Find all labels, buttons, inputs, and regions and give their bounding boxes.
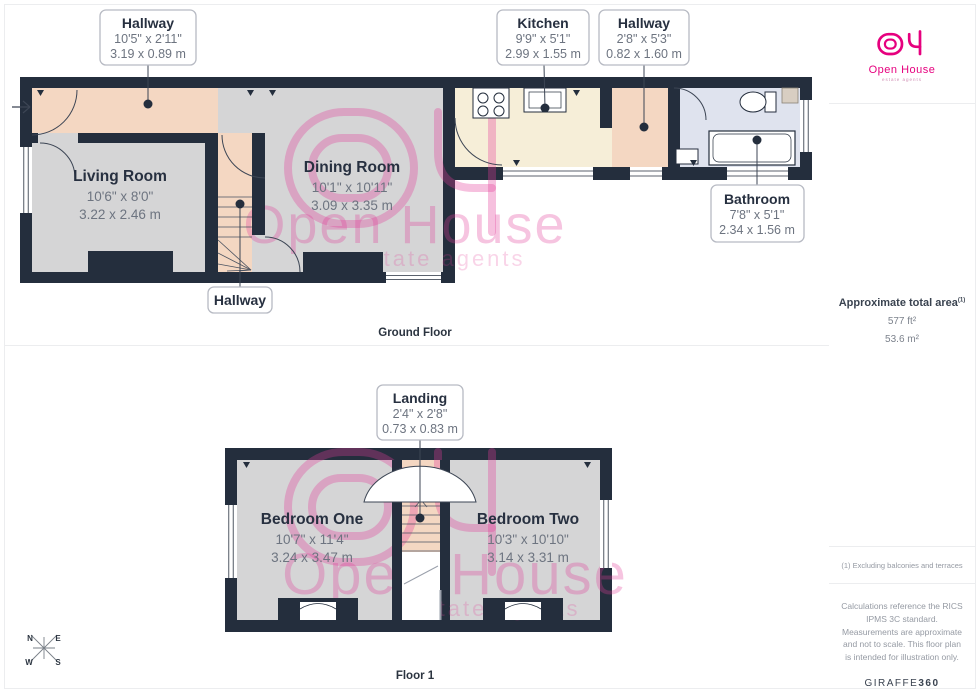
- bathtub-icon: [709, 131, 795, 165]
- hallway-top-title: Hallway: [122, 15, 174, 31]
- hallway-top-metric: 3.19 x 0.89 m: [110, 47, 186, 61]
- total-area-title-text: Approximate total area: [839, 297, 958, 309]
- gf-dining-chimney: [303, 252, 383, 272]
- landing-title: Landing: [393, 390, 447, 406]
- agency-logo: Open House estate agents: [829, 5, 975, 104]
- giraffe360-brand: GIRAFFE360: [841, 678, 963, 689]
- dining-room-metric: 3.09 x 3.35 m: [311, 198, 393, 213]
- landing-imperial: 2'4" x 2'8": [393, 407, 448, 421]
- disclaimer-text: Calculations reference the RICS IPMS 3C …: [841, 600, 963, 664]
- bedroom-two-metric: 3.14 x 3.31 m: [487, 550, 569, 565]
- agency-name: Open House: [869, 64, 936, 76]
- hallway-right-title: Hallway: [618, 15, 670, 31]
- bathroom-metric: 2.34 x 1.56 m: [719, 223, 795, 237]
- landing-metric: 0.73 x 0.83 m: [382, 422, 458, 436]
- agency-tagline: estate agents: [882, 77, 922, 82]
- hallway-stairs-title: Hallway: [214, 292, 266, 308]
- kitchen-imperial: 9'9" x 5'1": [516, 32, 571, 46]
- ground-floor-plan: Open House estate agents: [12, 10, 812, 339]
- living-room-imperial: 10'6" x 8'0": [87, 189, 154, 204]
- floor-1-plan: Open House estate agents: [225, 385, 628, 682]
- living-room-metric: 3.22 x 2.46 m: [79, 207, 161, 222]
- bedroom-two-imperial: 10'3" x 10'10": [487, 532, 569, 547]
- gf-hallway-floor: [32, 88, 218, 133]
- f1-stairwell-void: [402, 552, 440, 620]
- agency-logo-icon: [874, 27, 930, 63]
- bedroom-one-title: Bedroom One: [261, 511, 364, 528]
- bedroom-two-label: Bedroom Two 10'3" x 10'10" 3.14 x 3.31 m: [477, 511, 579, 565]
- bedroom-one-metric: 3.24 x 3.47 m: [271, 550, 353, 565]
- hallway-right-imperial: 2'8" x 5'3": [617, 32, 672, 46]
- floorplan-page: Open House estate agents: [0, 0, 980, 693]
- giraffe-360-text: 360: [918, 678, 939, 689]
- total-area-superscript: (1): [958, 297, 965, 303]
- total-area-title: Approximate total area(1): [829, 297, 975, 309]
- hallway-right-metric: 0.82 x 1.60 m: [606, 47, 682, 61]
- ground-floor-caption: Ground Floor: [378, 327, 452, 339]
- gf-vestibule-floor: [218, 88, 265, 133]
- dining-room-label: Dining Room 10'1" x 10'11" 3.09 x 3.35 m: [304, 159, 400, 213]
- living-room-title: Living Room: [73, 168, 167, 185]
- floor-1-caption: Floor 1: [396, 670, 435, 682]
- floor-section-divider: [5, 345, 829, 346]
- kitchen-metric: 2.99 x 1.55 m: [505, 47, 581, 61]
- compass-east: E: [55, 634, 61, 643]
- gf-kitchen-pass: [600, 128, 612, 167]
- toilet-icon: [765, 92, 776, 112]
- compass-icon: N E W S: [25, 634, 61, 667]
- compass-north: N: [27, 634, 33, 643]
- bedroom-one-label: Bedroom One 10'7" x 11'4" 3.24 x 3.47 m: [261, 511, 364, 565]
- floorplan-drawing: Open House estate agents: [0, 0, 828, 693]
- bathroom-title: Bathroom: [724, 191, 790, 207]
- bathroom-imperial: 7'8" x 5'1": [730, 208, 785, 222]
- sidebar: Open House estate agents Approximate tot…: [829, 5, 975, 688]
- hallway-top-imperial: 10'5" x 2'11": [114, 32, 182, 46]
- basin-icon: [782, 88, 798, 103]
- total-area-ft: 577 ft²: [829, 316, 975, 327]
- bedroom-one-imperial: 10'7" x 11'4": [275, 532, 348, 547]
- dining-room-title: Dining Room: [304, 159, 400, 176]
- disclaimer-section: Calculations reference the RICS IPMS 3C …: [829, 584, 975, 689]
- living-room-label: Living Room 10'6" x 8'0" 3.22 x 2.46 m: [73, 168, 167, 222]
- bedroom-two-title: Bedroom Two: [477, 511, 579, 528]
- total-area-m: 53.6 m²: [829, 334, 975, 345]
- total-area-section: Approximate total area(1) 577 ft² 53.6 m…: [829, 104, 975, 547]
- compass-west: W: [25, 658, 33, 667]
- exclusion-note: (1) Excluding balconies and terraces: [829, 547, 975, 584]
- giraffe-text: GIRAFFE: [864, 678, 918, 689]
- compass-south: S: [55, 658, 61, 667]
- dining-room-imperial: 10'1" x 10'11": [312, 180, 393, 195]
- kitchen-title: Kitchen: [517, 15, 568, 31]
- gf-living-chimney: [88, 251, 173, 272]
